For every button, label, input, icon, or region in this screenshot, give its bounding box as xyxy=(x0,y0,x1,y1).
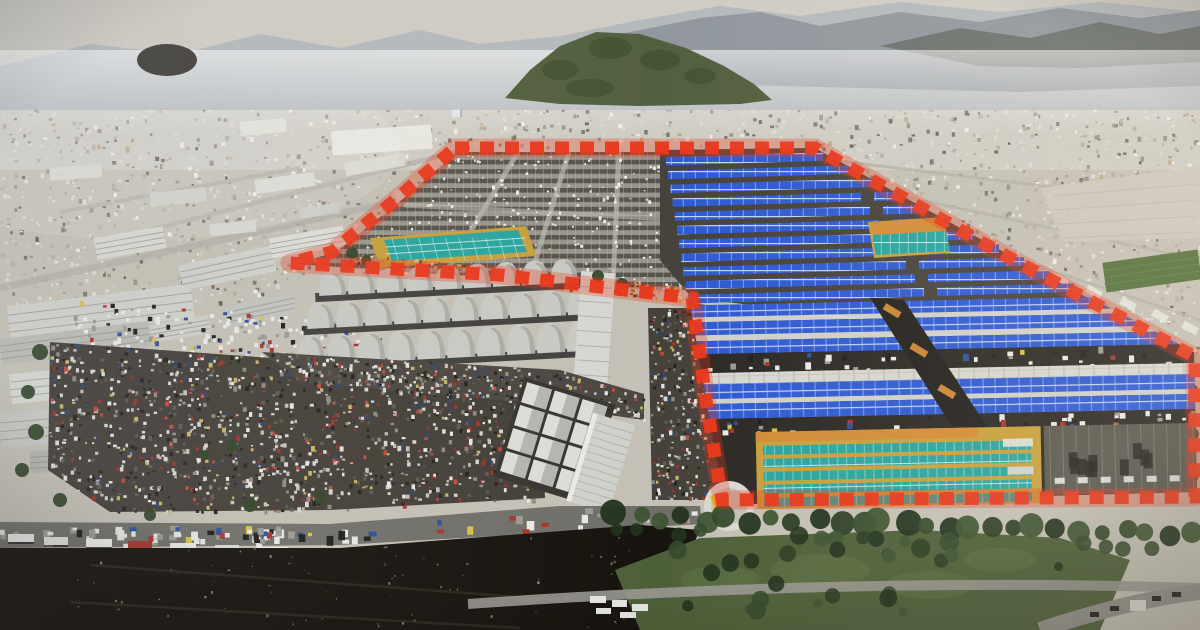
aerial-photo-of-market-complex xyxy=(0,0,1200,630)
aerial-photo-stage: Aerial photograph of a vast wholesale ma… xyxy=(0,0,1200,630)
light-and-haze-overlay xyxy=(0,0,1200,630)
